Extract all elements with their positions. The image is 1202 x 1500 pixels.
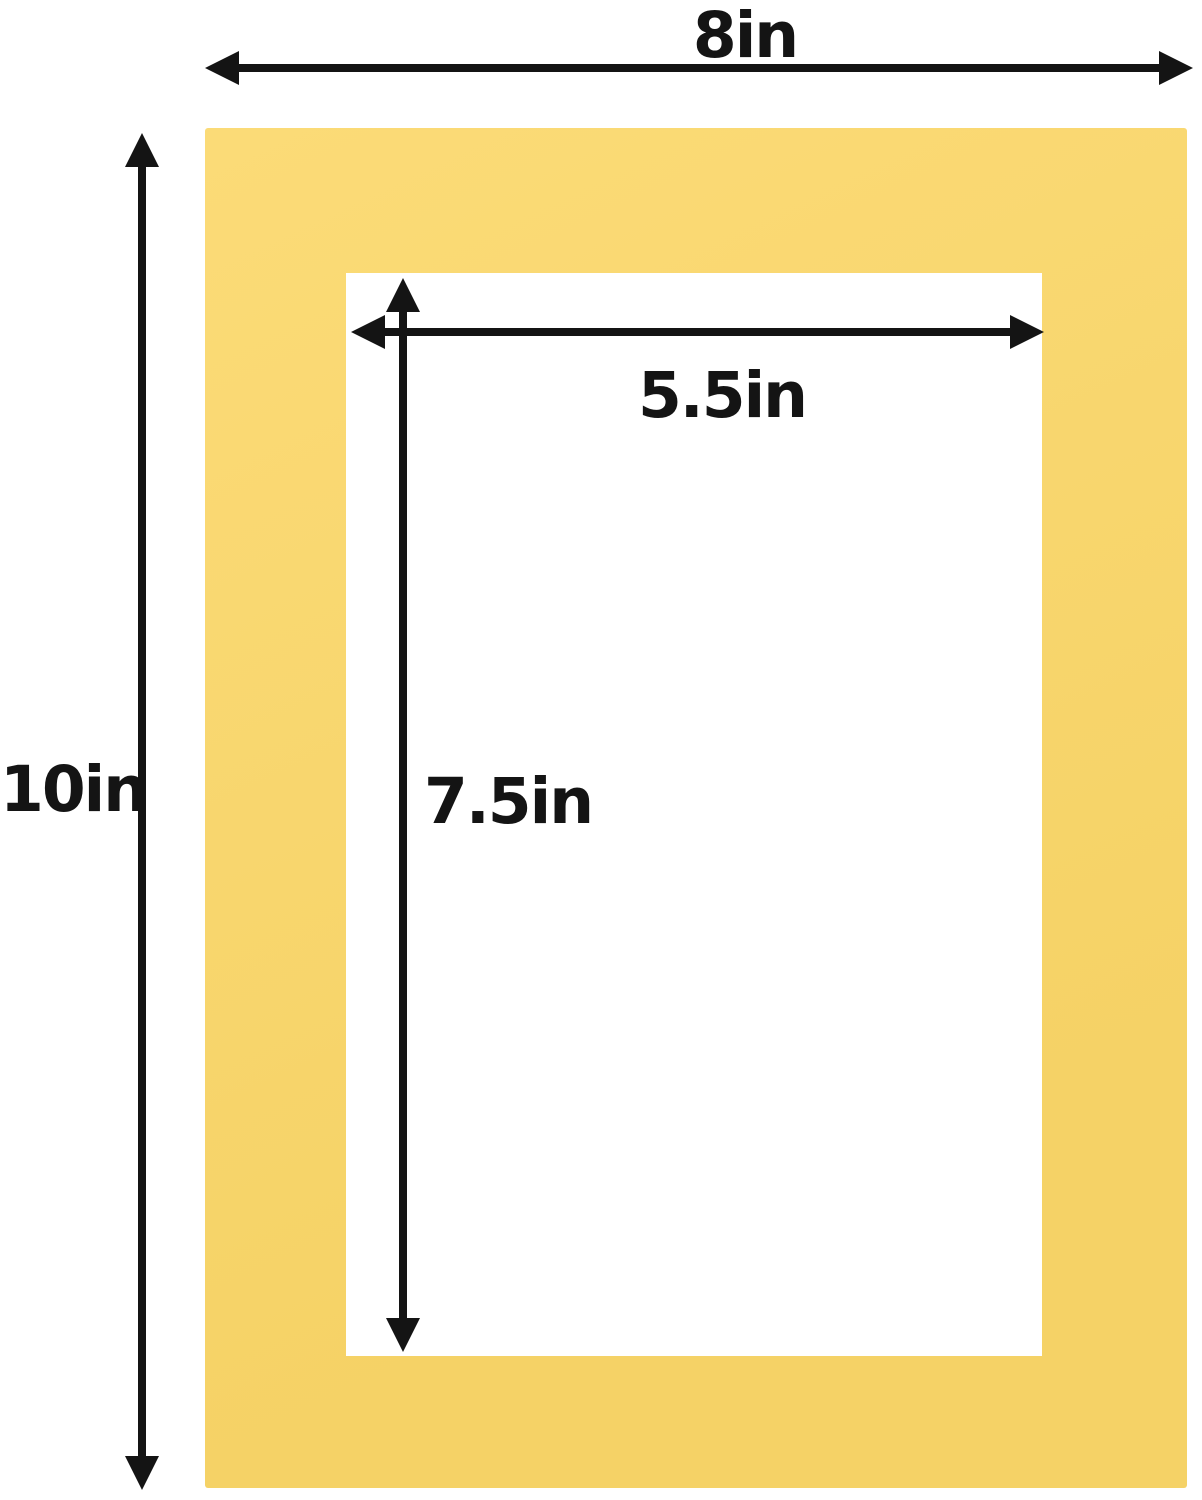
arrow-shaft	[138, 157, 146, 1466]
mat-dimension-diagram: 8in 10in 5.5in 7.5in	[0, 0, 1202, 1500]
arrowhead-down-icon	[386, 1318, 420, 1352]
arrowhead-right-icon	[1010, 315, 1044, 349]
opening-height-arrow	[386, 278, 420, 1352]
outer-height-arrow	[125, 133, 159, 1490]
outer-width-arrow	[205, 51, 1193, 85]
opening-width-label: 5.5in	[638, 364, 806, 427]
arrow-shaft	[229, 64, 1169, 72]
opening-width-arrow	[351, 315, 1044, 349]
arrow-shaft	[375, 328, 1020, 336]
opening-height-label: 7.5in	[424, 770, 592, 833]
arrowhead-down-icon	[125, 1456, 159, 1490]
arrow-shaft	[399, 302, 407, 1328]
arrowhead-right-icon	[1159, 51, 1193, 85]
